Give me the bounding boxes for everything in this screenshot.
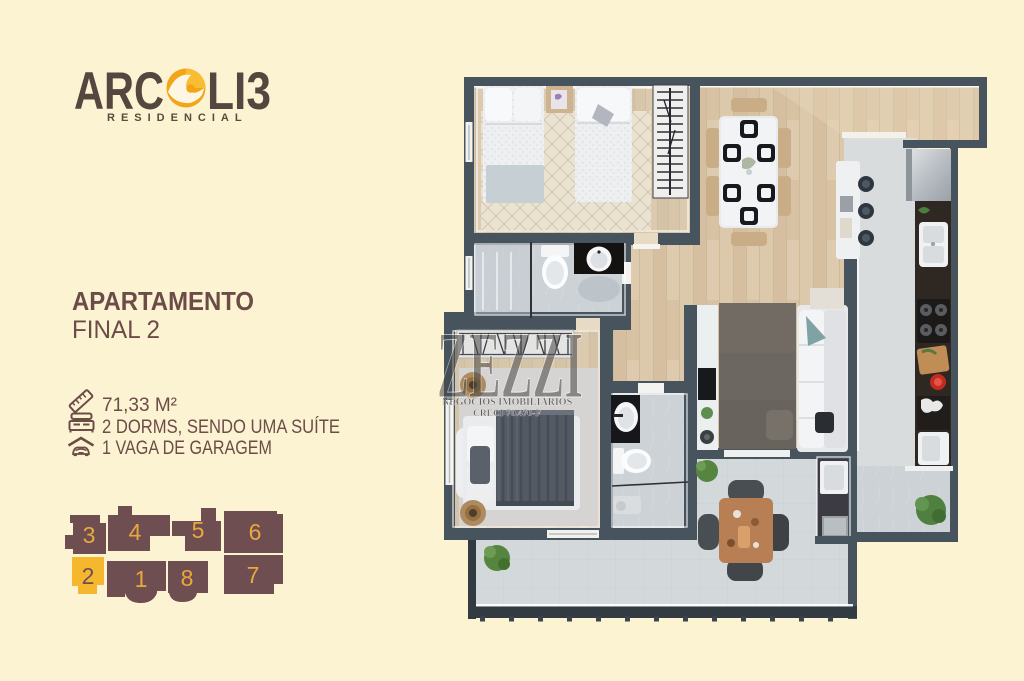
svg-text:1: 1	[135, 566, 148, 592]
svg-text:RESIDENCIAL: RESIDENCIAL	[107, 112, 248, 124]
svg-text:2: 2	[82, 563, 95, 589]
svg-text:3: 3	[83, 522, 96, 548]
svg-text:1 VAGA DE GARAGEM: 1 VAGA DE GARAGEM	[102, 438, 272, 459]
svg-text:71,33 M²: 71,33 M²	[102, 395, 177, 416]
svg-text:5: 5	[192, 517, 205, 543]
svg-text:NEGÓCIOS IMOBILIÁRIOS: NEGÓCIOS IMOBILIÁRIOS	[442, 396, 573, 408]
svg-text:4: 4	[129, 519, 142, 545]
svg-text:CRECI 70.470-F: CRECI 70.470-F	[473, 409, 541, 419]
svg-text:7: 7	[247, 562, 260, 588]
svg-text:8: 8	[181, 565, 194, 591]
svg-text:2 DORMS, SENDO UMA SUÍTE: 2 DORMS, SENDO UMA SUÍTE	[102, 417, 340, 438]
svg-text:6: 6	[249, 519, 262, 545]
svg-text:FINAL 2: FINAL 2	[72, 316, 160, 344]
svg-text:APARTAMENTO: APARTAMENTO	[72, 286, 254, 316]
